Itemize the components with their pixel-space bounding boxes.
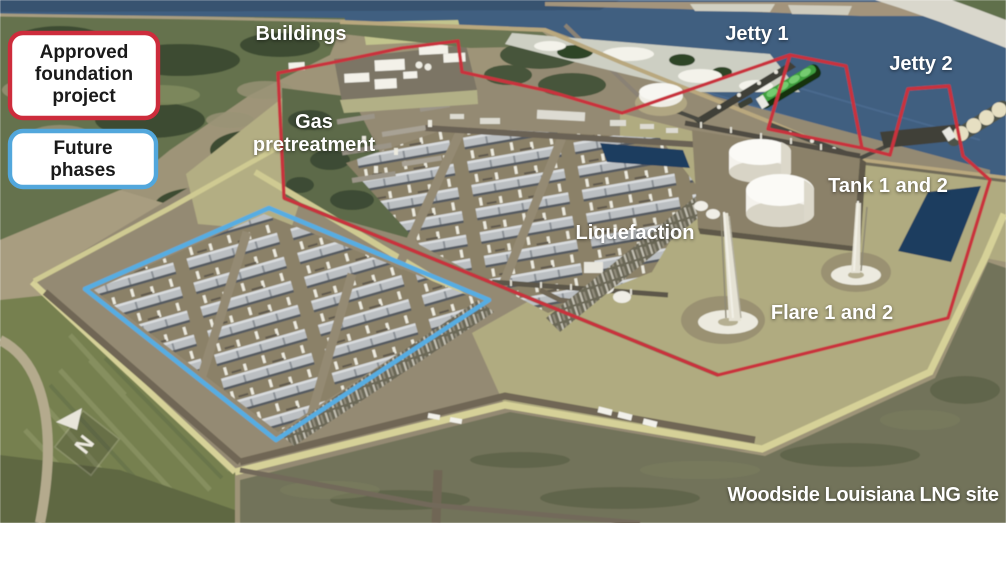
svg-text:phases: phases: [50, 160, 115, 181]
svg-text:foundation: foundation: [35, 64, 133, 85]
svg-text:project: project: [52, 86, 116, 107]
svg-text:pretreatment: pretreatment: [253, 134, 376, 156]
svg-text:Gas: Gas: [295, 111, 333, 133]
svg-text:Jetty 2: Jetty 2: [889, 53, 952, 75]
svg-text:Tank 1 and 2: Tank 1 and 2: [828, 175, 948, 197]
svg-text:Buildings: Buildings: [255, 23, 346, 45]
svg-text:Approved: Approved: [40, 42, 129, 63]
svg-text:Liquefaction: Liquefaction: [576, 222, 695, 244]
svg-text:Future: Future: [53, 138, 112, 159]
svg-text:Woodside Louisiana LNG site: Woodside Louisiana LNG site: [727, 484, 998, 506]
svg-text:Jetty 1: Jetty 1: [725, 23, 788, 45]
svg-text:Flare 1 and 2: Flare 1 and 2: [771, 302, 893, 324]
